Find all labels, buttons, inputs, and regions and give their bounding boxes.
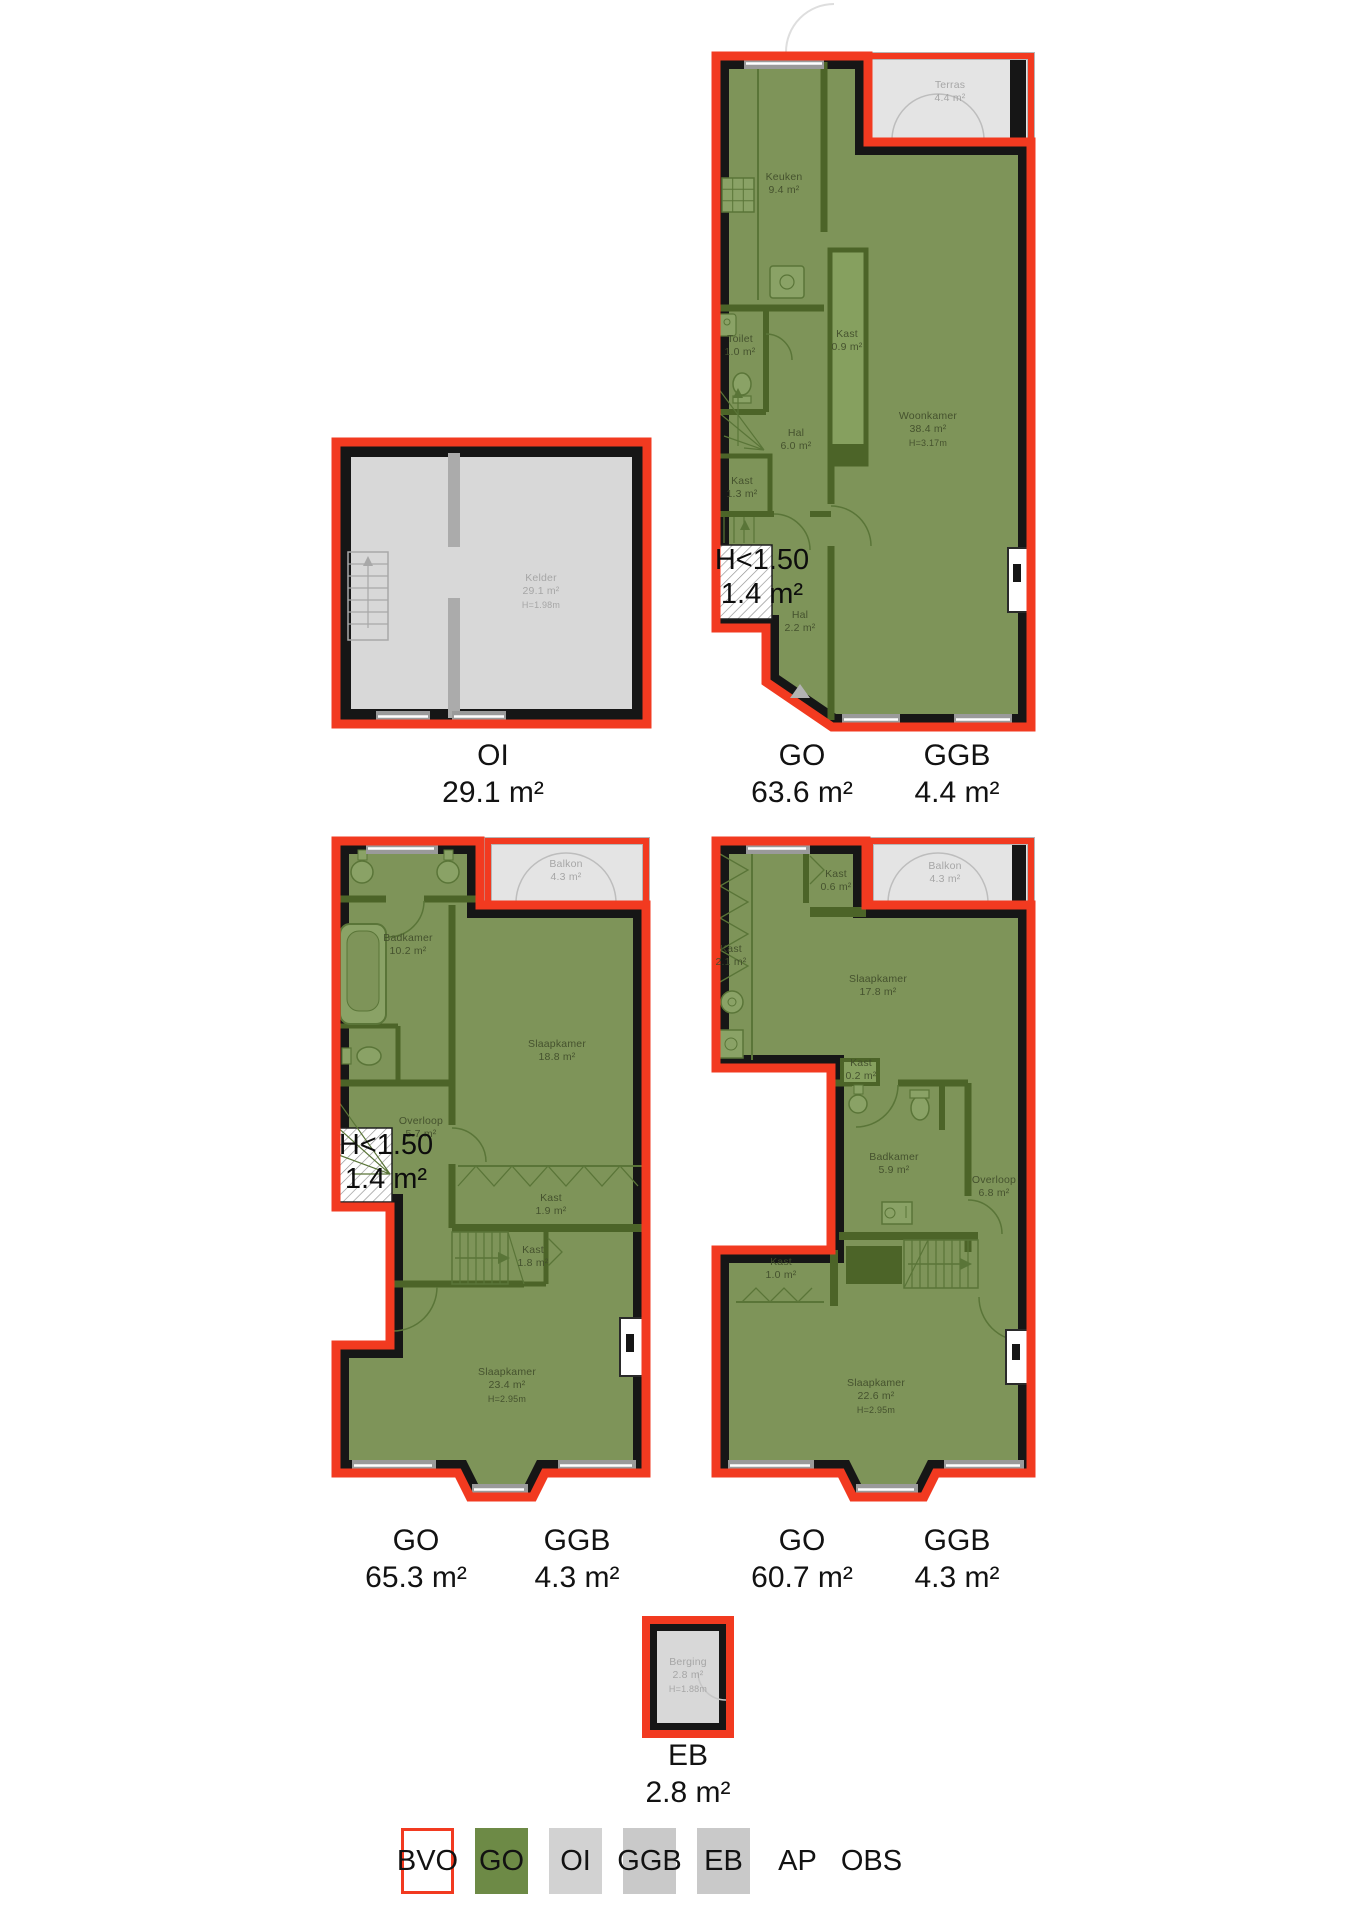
room-height: H=1.98m (522, 599, 560, 612)
room-label: Slaapkamer17.8 m² (849, 973, 907, 999)
room-label: Kast0.2 m² (846, 1057, 877, 1083)
plan-caption-ggb-2: GGB4.3 m² (534, 1522, 619, 1596)
washing-machine-icon (882, 1202, 912, 1224)
toilet-icon (342, 1047, 381, 1065)
room-area: 29.1 m² (522, 585, 560, 598)
plan-caption-go-3: GO60.7 m² (751, 1522, 853, 1596)
room-area: 23.4 m² (478, 1379, 536, 1392)
room-label: Toilet1.0 m² (725, 333, 756, 359)
room-area: 1.0 m² (725, 346, 756, 359)
room-label: Woonkamer38.4 m²H=3.17m (899, 410, 957, 450)
room-label: Hal6.0 m² (781, 427, 812, 453)
room-name: Kast (821, 868, 852, 881)
room-name: Balkon (549, 858, 582, 871)
floorplans-canvas (0, 0, 1358, 1920)
room-label: Kelder29.1 m²H=1.98m (522, 572, 560, 612)
floorplan-basement (320, 426, 664, 740)
room-name: Keuken (766, 171, 803, 184)
closet (830, 250, 866, 464)
toilet-icon (910, 1090, 929, 1120)
legend-item-ggb: GGB (623, 1828, 676, 1894)
washing-machine-icon (721, 991, 743, 1013)
room-area: 2.2 m² (785, 622, 816, 635)
room-area: 4.4 m² (935, 92, 966, 105)
legend-item-bvo: BVO (401, 1828, 454, 1894)
room-name: Kast (727, 475, 758, 488)
room-area: 0.2 m² (846, 1070, 877, 1083)
room-name: Kelder (522, 572, 560, 585)
low-height-label: H<1.501.4 m² (710, 543, 814, 611)
room-name: Kast (846, 1057, 877, 1070)
room-area: 2.8 m² (669, 1669, 707, 1682)
room-label: Kast0.9 m² (832, 328, 863, 354)
room-label: Kast1.9 m² (536, 1192, 567, 1218)
plan-caption-go-2: GO65.3 m² (365, 1522, 467, 1596)
room-area: 0.9 m² (832, 341, 863, 354)
room-area: 4.3 m² (549, 871, 582, 884)
door-arc-icon (786, 4, 834, 52)
plan-caption-ggb-3: GGB4.3 m² (914, 1522, 999, 1596)
room-area: 2.1 m² (716, 956, 747, 969)
room-name: Badkamer (383, 932, 432, 945)
stair-landing (846, 1246, 902, 1284)
room-name: Woonkamer (899, 410, 957, 423)
room-area: 10.2 m² (383, 945, 432, 958)
room-name: Balkon (928, 860, 961, 873)
room-area: 6.0 m² (781, 440, 812, 453)
room-label: Kast1.0 m² (766, 1256, 797, 1282)
room-name: Terras (935, 79, 966, 92)
partition-wall (448, 598, 460, 718)
hob-icon (722, 178, 754, 212)
legend-item-ap: AP (771, 1828, 824, 1894)
room-label: Slaapkamer23.4 m²H=2.95m (478, 1366, 536, 1406)
room-label: Badkamer10.2 m² (383, 932, 432, 958)
room-name: Slaapkamer (478, 1366, 536, 1379)
room-label: Badkamer5.9 m² (869, 1151, 918, 1177)
room-height: H=2.95m (478, 1393, 536, 1406)
room-label: Kast2.1 m² (716, 943, 747, 969)
room-area: 38.4 m² (899, 423, 957, 436)
legend-item-oi: OI (549, 1828, 602, 1894)
room-area: 1.0 m² (766, 1269, 797, 1282)
kitchen-sink-icon (770, 266, 804, 298)
legend-item-go: GO (475, 1828, 528, 1894)
room-name: Kast (832, 328, 863, 341)
room-area: 18.8 m² (528, 1051, 586, 1064)
room-area: 5.9 m² (869, 1164, 918, 1177)
room-height: H=2.95m (847, 1404, 905, 1417)
room-area: 4.3 m² (928, 873, 961, 886)
room-name: Overloop (399, 1115, 443, 1128)
room-label: Hal2.2 m² (785, 609, 816, 635)
room-area: 6.8 m² (972, 1187, 1016, 1200)
boiler-icon (719, 1030, 743, 1058)
room-label: Kast1.3 m² (727, 475, 758, 501)
plan-caption-ggb-1: GGB4.4 m² (914, 737, 999, 811)
room-area: 17.8 m² (849, 986, 907, 999)
plan-caption-go-1: GO63.6 m² (751, 737, 853, 811)
room-label: Berging2.8 m²H=1.88m (669, 1656, 707, 1696)
room-name: Toilet (725, 333, 756, 346)
room-label: Overloop6.8 m² (972, 1174, 1016, 1200)
room-name: Overloop (972, 1174, 1016, 1187)
room-label: Keuken9.4 m² (766, 171, 803, 197)
room-name: Hal (781, 427, 812, 440)
partition-wall (448, 453, 460, 547)
room-height: H=3.17m (899, 437, 957, 450)
bathtub-icon (340, 924, 386, 1024)
room-label: Balkon4.3 m² (549, 858, 582, 884)
room-area: 22.6 m² (847, 1390, 905, 1403)
room-area: 0.6 m² (821, 881, 852, 894)
room-label: Slaapkamer22.6 m²H=2.95m (847, 1377, 905, 1417)
legend-item-eb: EB (697, 1828, 750, 1894)
room-area: 1.8 m² (518, 1257, 549, 1270)
room-label: Balkon4.3 m² (928, 860, 961, 886)
room-name: Slaapkamer (847, 1377, 905, 1390)
room-area: 1.9 m² (536, 1205, 567, 1218)
plan-caption-eb: EB2.8 m² (645, 1737, 730, 1811)
room-name: Berging (669, 1656, 707, 1669)
room-label: Slaapkamer18.8 m² (528, 1038, 586, 1064)
room-label: Terras4.4 m² (935, 79, 966, 105)
low-height-label: H<1.501.4 m² (334, 1128, 438, 1196)
room-name: Slaapkamer (849, 973, 907, 986)
room-name: Slaapkamer (528, 1038, 586, 1051)
room-name: Kast (766, 1256, 797, 1269)
room-name: Kast (536, 1192, 567, 1205)
room-label: Kast0.6 m² (821, 868, 852, 894)
room-area: 1.3 m² (727, 488, 758, 501)
floorplan-sheet: { "colors": { "bvo_red_outline": "#f23a2… (0, 0, 1358, 1920)
room-height: H=1.88m (669, 1683, 707, 1696)
legend-item-obs: OBS (845, 1828, 898, 1894)
room-area: 9.4 m² (766, 184, 803, 197)
room-name: Badkamer (869, 1151, 918, 1164)
room-label: Kast1.8 m² (518, 1244, 549, 1270)
room-name: Kast (716, 943, 747, 956)
plan-caption-oi: OI29.1 m² (442, 737, 544, 811)
room-name: Kast (518, 1244, 549, 1257)
legend: BVO GO OI GGB EB AP OBS (401, 1828, 898, 1894)
